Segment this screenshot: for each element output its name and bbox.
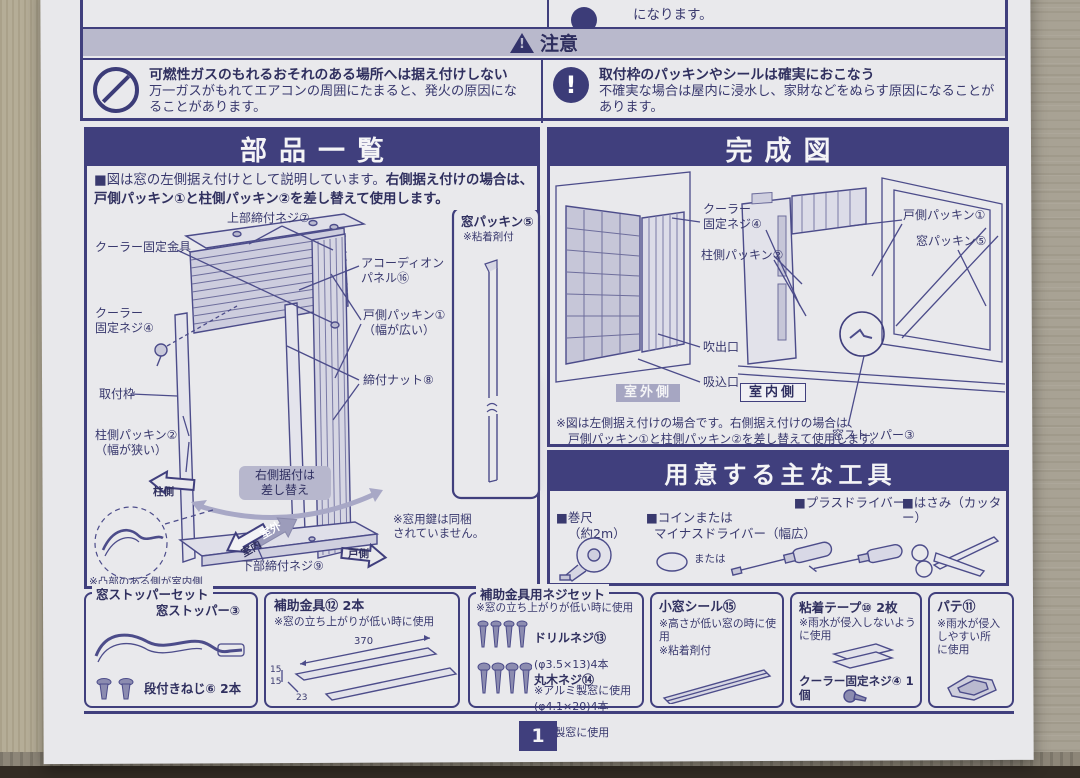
finished-footnote-2: 戸側パッキン①と柱側パッキン②を差し替えて使用します。 bbox=[568, 432, 882, 446]
label-air-outlet: 吹出口 bbox=[703, 340, 739, 355]
small-window-seal-box: 小窓シール⑮ ※高さが低い窓の時に使用 ※粘着剤付 bbox=[650, 592, 784, 708]
dim-15b: 15 bbox=[270, 677, 281, 687]
label-mount-frame: 取付枠 bbox=[99, 387, 135, 402]
stepped-screw-label: 段付きねじ⑥ 2本 bbox=[144, 682, 241, 697]
label-cooler-fix-screw: クーラー 固定ネジ④ bbox=[95, 306, 154, 335]
caution-left-title: 可燃性ガスのもれるおそれのある場所へは据え付けしない bbox=[149, 67, 529, 84]
aux-bracket-title: 補助金具⑫ 2本 bbox=[274, 599, 364, 615]
putty-title: パテ⑪ bbox=[937, 600, 975, 616]
coin-icon bbox=[654, 551, 690, 573]
tools-title: 用意する主な工具 bbox=[550, 453, 1006, 491]
caution-right-title: 取付枠のパッキンやシールは確実におこなう bbox=[599, 67, 999, 84]
door-side-arrow-label: 戸側 bbox=[347, 547, 369, 560]
label-fin-fix-screw: クーラー 固定ネジ④ bbox=[703, 202, 762, 231]
window-stopper-drawing bbox=[90, 620, 250, 666]
parts-list-panel: 部品一覧 ■図は窓の左側据え付けとして説明しています。右側据え付けの場合は、戸側… bbox=[84, 127, 540, 589]
window-stopper-set-box: 窓ストッパーセット 窓ストッパー③ 段付きねじ⑥ 2本 bbox=[84, 592, 258, 708]
parts-list-title: 部品一覧 bbox=[87, 130, 537, 166]
tools-row: ■巻尺（約2m） ■コインまたはマイナスドライバー（幅広） または bbox=[550, 491, 1006, 586]
swap-note-bubble: 右側据付は 差し替え bbox=[239, 466, 331, 500]
caution-section: になります。 ! 注意 可燃性ガスのもれるおそれのある場所へは据え付けしない 万… bbox=[80, 0, 1008, 121]
label-fin-pillar-packing: 柱側パッキン② bbox=[701, 248, 783, 263]
screw-set-legend: 補助金具用ネジセット bbox=[476, 584, 609, 603]
outdoor-side-badge: 室外側 bbox=[616, 384, 680, 402]
caution-right-body: 不確実な場合は屋内に浸水し、家財などをぬらす原因になることがあります。 bbox=[599, 84, 999, 116]
caution-cell-left: 可燃性ガスのもれるおそれのある場所へは据え付けしない 万一ガスがもれてエアコンの… bbox=[83, 60, 541, 123]
label-door-packing: 戸側パッキン① （幅が広い） bbox=[363, 308, 445, 337]
instruction-sheet-photo: になります。 ! 注意 可燃性ガスのもれるおそれのある場所へは据え付けしない 万… bbox=[0, 0, 1080, 778]
scissors-icon bbox=[906, 531, 1002, 583]
label-fin-window-packing: 窓パッキン⑤ bbox=[916, 234, 986, 249]
window-key-note: ※窓用鍵は同梱 されていません。 bbox=[393, 512, 484, 540]
caution-prev-row-divider bbox=[547, 0, 549, 27]
caution-left-body: 万一ガスがもれてエアコンの周囲にたまると、発火の原因になることがあります。 bbox=[149, 84, 529, 116]
warning-triangle-icon: ! bbox=[510, 33, 534, 53]
aux-bracket-drawing: 370 15 15 23 bbox=[268, 630, 458, 704]
or-text: または bbox=[694, 553, 726, 566]
dim-23: 23 bbox=[296, 693, 307, 703]
label-upper-screw: 上部締付ネジ⑦ bbox=[227, 211, 310, 226]
putty-note: ※雨水が侵入 しやすい所 に使用 bbox=[937, 617, 1000, 657]
caution-band: ! 注意 bbox=[83, 29, 1005, 56]
finished-view-title: 完成図 bbox=[550, 130, 1006, 166]
tool-coin-driver-label: ■コインまたはマイナスドライバー（幅広） bbox=[646, 495, 816, 541]
window-packing-box-title: 窓パッキン⑤ bbox=[461, 214, 534, 229]
label-cooler-bracket: クーラー固定金具 bbox=[95, 240, 191, 255]
finished-view-panel: 完成図 bbox=[547, 127, 1009, 447]
label-accordion-panel: アコーディオン パネル⑯ bbox=[361, 256, 444, 285]
screw-set-note: ※窓の立ち上がりが低い時に使用 bbox=[476, 602, 633, 615]
adhesive-tape-box: 粘着テープ⑩ 2枚 ※雨水が侵入しないよう に使用 クーラー固定ネジ④ 1個 bbox=[790, 592, 922, 708]
drill-screws-icon bbox=[476, 620, 528, 650]
window-packing-box-note: ※粘着剤付 bbox=[463, 231, 514, 244]
parts-intro: ■図は窓の左側据え付けとして説明しています。右側据え付けの場合は、戸側パッキン①… bbox=[94, 172, 534, 209]
cooler-screw-icon bbox=[842, 688, 868, 706]
parts-diagram: 柱側 戸側 室外 室内 上部締付ネジ⑦ クーラー固定金具 クーラー 固定ネジ④ bbox=[87, 210, 542, 590]
finished-diagram: クーラー 固定ネジ④ 柱側パッキン② 戸側パッキン① 窓パッキン⑤ 吹出口 吸込… bbox=[550, 166, 1006, 447]
caution-prev-row: になります。 bbox=[83, 0, 1005, 29]
prohibition-icon bbox=[93, 67, 139, 113]
label-air-inlet: 吸込口 bbox=[703, 375, 739, 390]
screw-set-box: 補助金具用ネジセット ※窓の立ち上がりが低い時に使用 ドリルネジ⑬ (φ3.5×… bbox=[468, 592, 644, 708]
label-pillar-packing: 柱側パッキン② （幅が狭い） bbox=[95, 428, 177, 457]
window-stopper-set-legend: 窓ストッパーセット bbox=[92, 584, 213, 603]
tool-scissors-label: ■はさみ（カッター） bbox=[902, 495, 1006, 526]
stepped-screws-icon bbox=[94, 678, 138, 702]
wood-screws-icon bbox=[476, 662, 532, 696]
small-seal-drawing bbox=[656, 660, 780, 704]
floor-dark-strip bbox=[0, 766, 1080, 778]
small-seal-note1: ※高さが低い窓の時に使用 bbox=[659, 617, 777, 643]
bottom-rule bbox=[84, 711, 1014, 714]
tool-phillips-label: ■プラスドライバー bbox=[794, 495, 905, 510]
label-lower-screw: 下部締付ネジ⑨ bbox=[241, 559, 324, 574]
small-seal-title: 小窓シール⑮ bbox=[659, 600, 736, 616]
indoor-side-badge: 室内側 bbox=[740, 383, 806, 402]
small-seal-note2: ※粘着剤付 bbox=[659, 644, 711, 657]
exclamation-icon: ! bbox=[553, 67, 589, 103]
page-number-badge: 1 bbox=[519, 721, 557, 751]
label-tightening-nut: 締付ナット⑧ bbox=[363, 373, 434, 388]
tape-measure-icon bbox=[556, 531, 634, 583]
putty-box: パテ⑪ ※雨水が侵入 しやすい所 に使用 bbox=[928, 592, 1014, 708]
auxiliary-bracket-box: 補助金具⑫ 2本 ※窓の立ち上がりが低い時に使用 370 15 15 23 bbox=[264, 592, 460, 708]
adhesive-tape-title: 粘着テープ⑩ 2枚 bbox=[799, 600, 898, 615]
tape-sheets-icon bbox=[828, 642, 898, 670]
dim-370: 370 bbox=[354, 636, 373, 647]
caution-band-label: 注意 bbox=[540, 29, 578, 56]
aux-bracket-note: ※窓の立ち上がりが低い時に使用 bbox=[274, 615, 434, 628]
pillar-side-arrow-label: 柱側 bbox=[153, 485, 174, 498]
finished-footnote-1: ※図は左側据え付けの場合です。右側据え付けの場合は、 bbox=[556, 416, 860, 430]
caution-cell-right: ! 取付枠のパッキンやシールは確実におこなう 不確実な場合は屋内に浸水し、家財な… bbox=[541, 60, 1005, 123]
window-stopper-item-label: 窓ストッパー③ bbox=[156, 604, 240, 619]
caution-prev-text: になります。 bbox=[633, 7, 713, 23]
caution-row: 可燃性ガスのもれるおそれのある場所へは据え付けしない 万一ガスがもれてエアコンの… bbox=[83, 58, 1005, 123]
dim-15a: 15 bbox=[270, 665, 281, 675]
phillips-screwdriver-icon bbox=[802, 539, 912, 579]
tools-panel: 用意する主な工具 ■巻尺（約2m） ■コインまたはマイナスドライバー（幅広） ま… bbox=[547, 450, 1009, 586]
label-fin-door-packing: 戸側パッキン① bbox=[903, 208, 985, 223]
adhesive-tape-note: ※雨水が侵入しないよう に使用 bbox=[799, 616, 916, 642]
putty-pack-icon bbox=[944, 672, 1000, 702]
page-number: 1 bbox=[531, 725, 544, 747]
